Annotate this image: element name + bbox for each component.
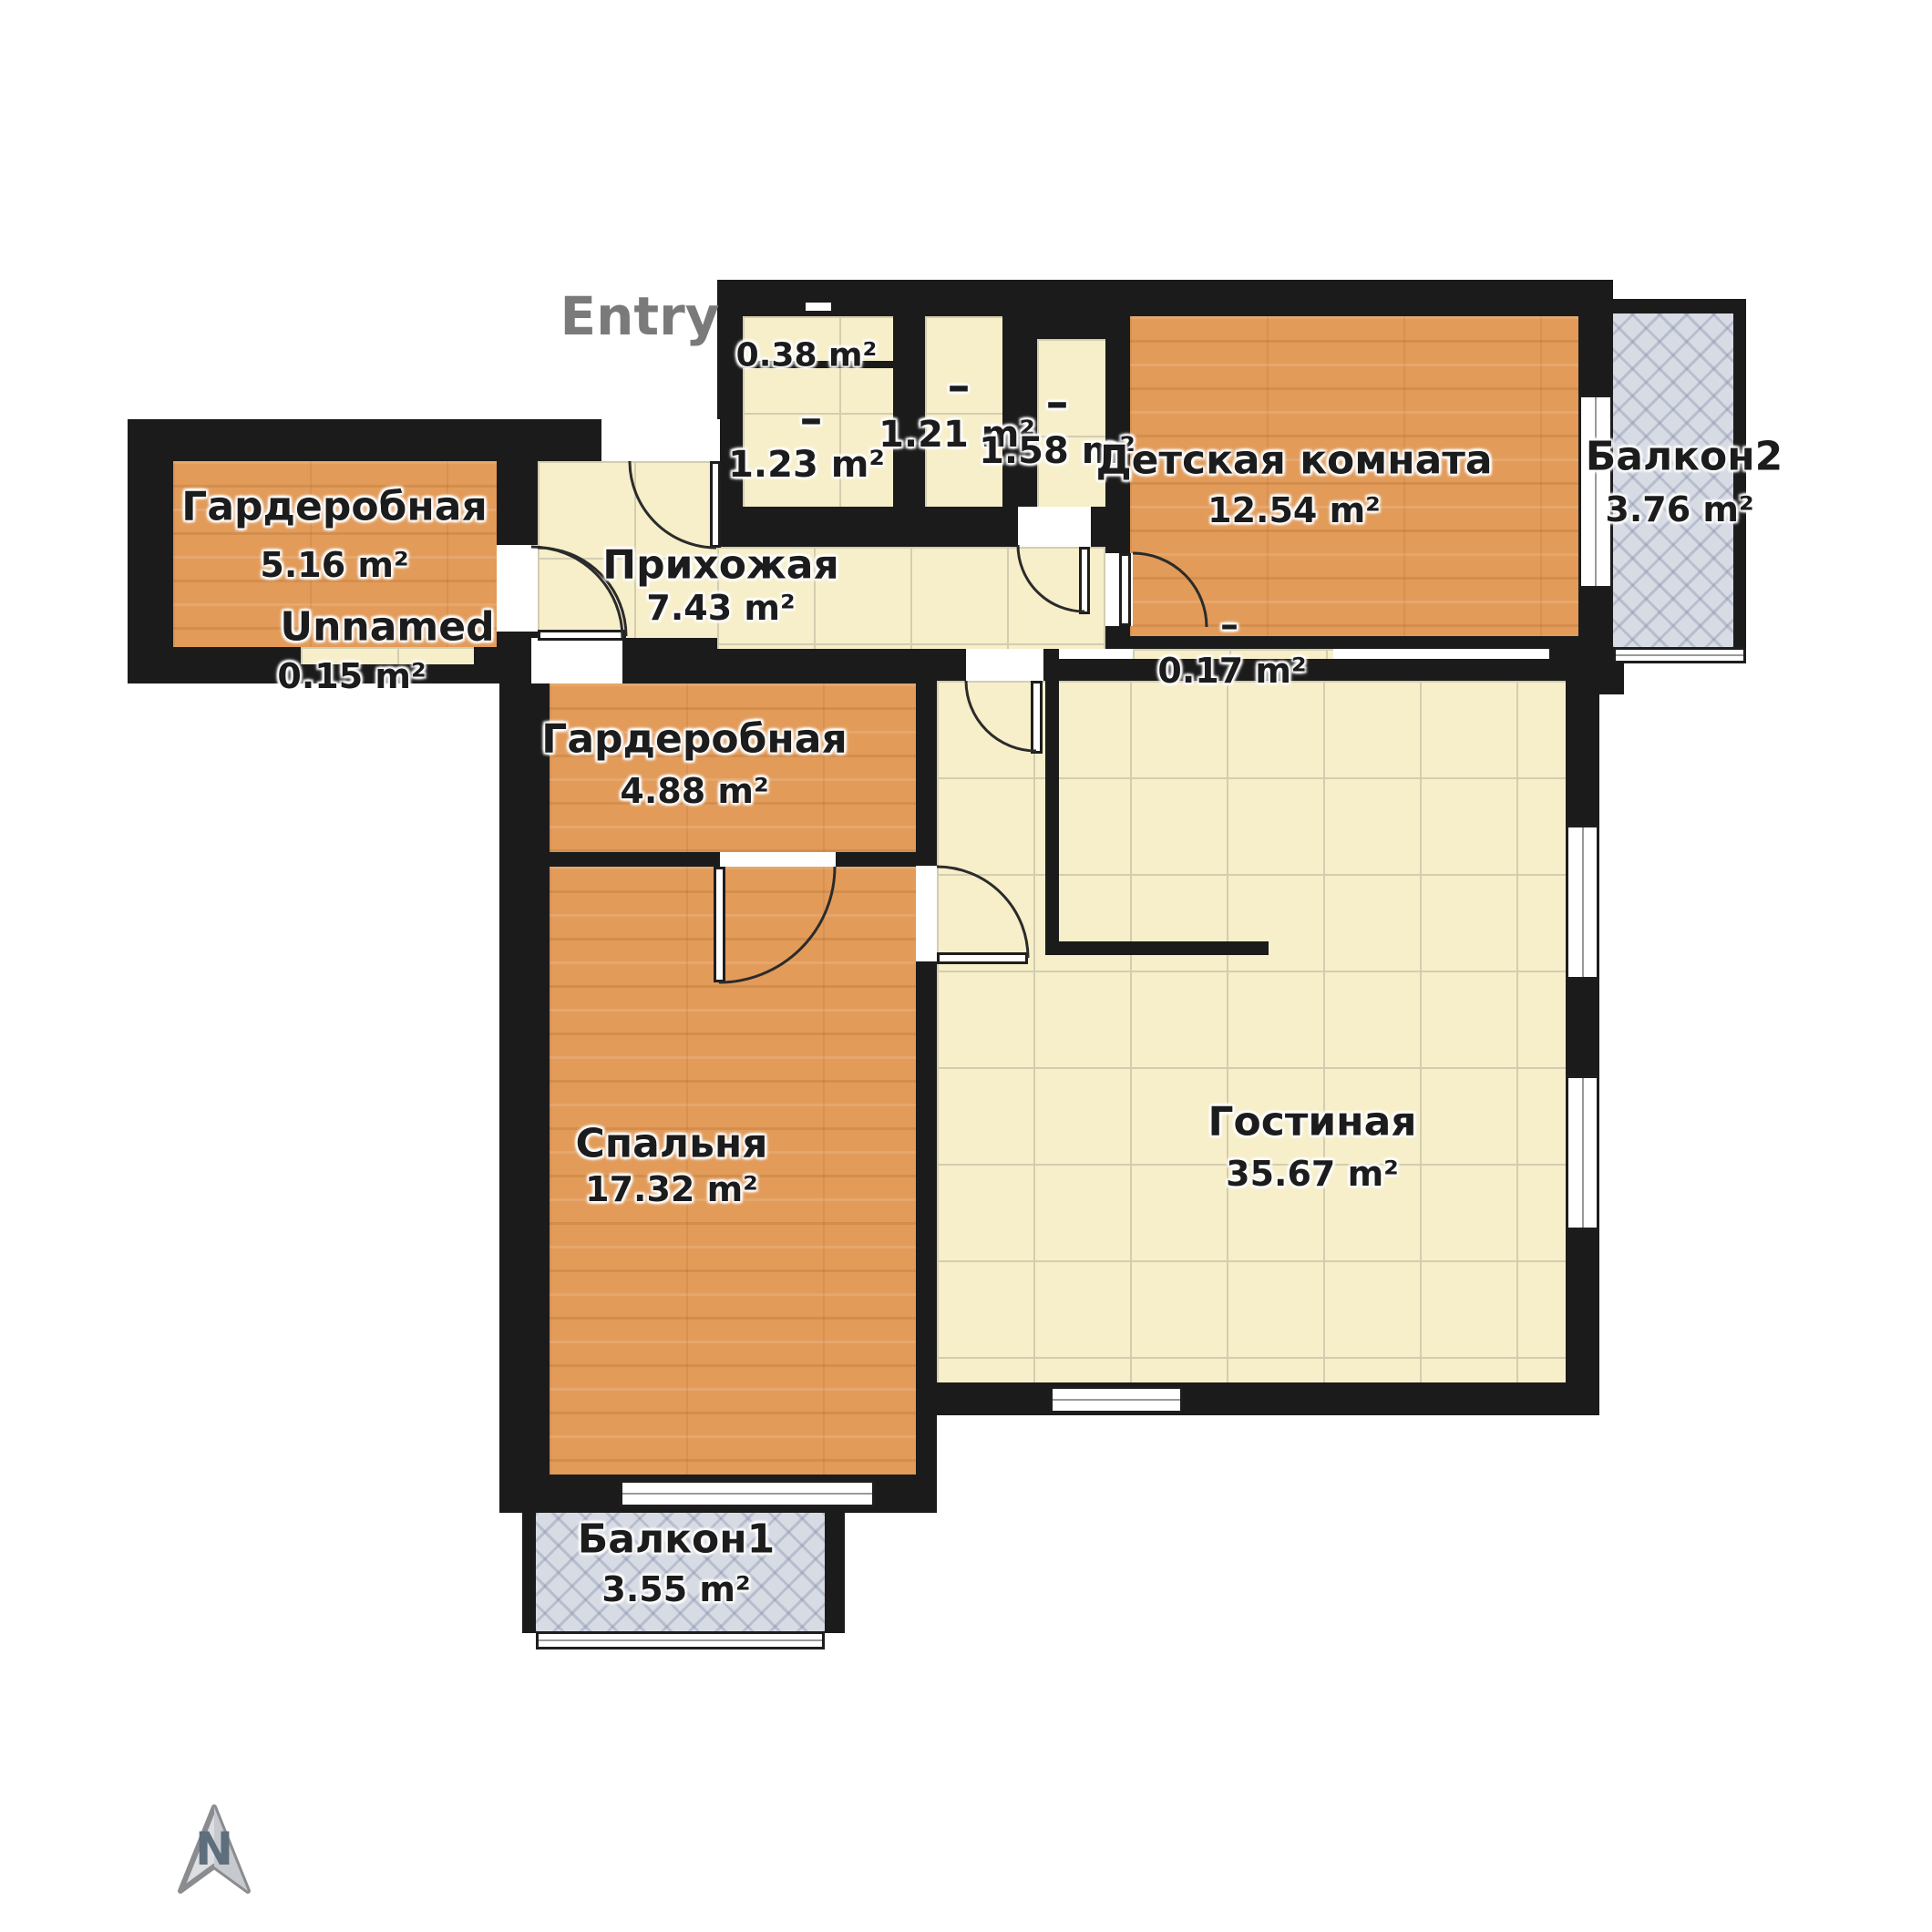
- dash-label: –: [1220, 604, 1238, 646]
- window-living-bottom: [1050, 1386, 1183, 1413]
- door-leaf: [538, 630, 626, 641]
- area-label-balcony1: 3.55 m²: [601, 1569, 750, 1611]
- floor-living: [937, 681, 1566, 1382]
- wall-notch: [806, 303, 831, 311]
- door-opening: [966, 649, 1043, 681]
- wall: [1733, 299, 1746, 663]
- floor-balcony2: [1613, 313, 1733, 649]
- wall: [825, 1495, 845, 1633]
- wall: [1130, 636, 1578, 649]
- area-label-wardrobe-left: 5.16 m²: [260, 545, 408, 587]
- entry-door-opening: [601, 419, 720, 461]
- area-label-balcony2: 3.76 m²: [1605, 489, 1753, 531]
- dash-label: –: [948, 359, 971, 412]
- wall: [1613, 299, 1733, 313]
- room-label-wardrobe-mid: Гардеробная: [541, 717, 847, 764]
- wall: [1045, 681, 1059, 954]
- room-label-unnamed: Unnamed: [280, 605, 494, 652]
- area-label-unnamed: 0.15 m²: [277, 656, 426, 698]
- door-opening: [720, 852, 836, 867]
- area-label-storage-b: 1.23 m²: [728, 443, 885, 487]
- room-label-living: Гостиная: [1207, 1100, 1416, 1146]
- window-living-2: [1566, 1075, 1599, 1230]
- wall: [916, 1382, 1599, 1415]
- area-label-duct: 0.17 m²: [1157, 651, 1306, 693]
- door-leaf: [714, 867, 725, 982]
- dash-label: –: [800, 392, 823, 445]
- door-opening: [497, 545, 538, 632]
- door-leaf: [1031, 681, 1043, 754]
- door-leaf: [710, 461, 721, 548]
- window-bedroom: [620, 1480, 875, 1507]
- entry-label: Entry: [560, 285, 719, 347]
- dash-label: –: [1046, 375, 1069, 428]
- balcony1-rail-window: [536, 1631, 825, 1649]
- door-leaf: [937, 952, 1028, 964]
- room-label-wardrobe-left: Гардеробная: [181, 485, 487, 531]
- door-leaf: [1119, 553, 1131, 626]
- wall: [522, 1513, 536, 1633]
- balcony2-rail-window: [1613, 647, 1746, 663]
- room-label-hallway: Прихожая: [602, 543, 839, 590]
- room-label-bedroom: Спальня: [575, 1122, 767, 1168]
- door-opening: [916, 866, 937, 961]
- area-label-kids: 12.54 m²: [1207, 490, 1381, 532]
- area-label-storage-a: 0.38 m²: [736, 335, 878, 375]
- door-opening: [531, 638, 622, 683]
- area-label-bedroom: 17.32 m²: [585, 1169, 758, 1211]
- wall: [1045, 941, 1269, 955]
- wall: [1566, 674, 1599, 1415]
- door-leaf: [1079, 547, 1090, 614]
- area-label-wardrobe-mid: 4.88 m²: [620, 771, 768, 813]
- area-label-hallway: 7.43 m²: [646, 588, 795, 630]
- compass-letter: N: [195, 1823, 233, 1875]
- room-label-balcony1: Балкон1: [578, 1517, 776, 1564]
- north-arrow-icon: N: [180, 1807, 248, 1891]
- floor-wardrobe-mid: [550, 683, 916, 852]
- door-opening: [1018, 507, 1091, 547]
- area-label-living: 35.67 m²: [1226, 1154, 1399, 1196]
- window-living-1: [1566, 825, 1599, 980]
- room-label-kids: Детская комната: [1095, 438, 1492, 485]
- floor-plan: N Entry Гардеробная 5.16 m² Unnamed 0.15…: [0, 0, 1932, 1932]
- room-label-balcony2: Балкон2: [1586, 435, 1783, 481]
